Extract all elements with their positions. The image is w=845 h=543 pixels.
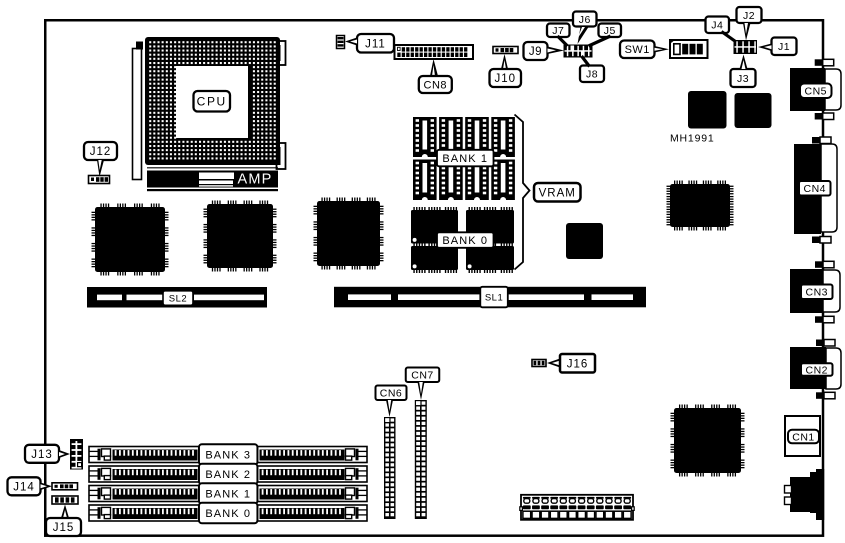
svg-text:CN2: CN2 xyxy=(805,364,828,376)
svg-text:CN1: CN1 xyxy=(792,431,815,443)
svg-text:J11: J11 xyxy=(365,38,386,50)
svg-text:SL1: SL1 xyxy=(485,292,503,303)
svg-text:BANK 0: BANK 0 xyxy=(205,508,251,520)
svg-text:CN8: CN8 xyxy=(424,79,448,91)
svg-text:CN4: CN4 xyxy=(803,183,826,195)
svg-text:J2: J2 xyxy=(743,10,755,22)
svg-text:CN3: CN3 xyxy=(805,287,828,299)
svg-text:J13: J13 xyxy=(31,449,53,461)
svg-text:CN5: CN5 xyxy=(804,86,827,98)
svg-text:J10: J10 xyxy=(494,73,516,85)
svg-text:BANK 2: BANK 2 xyxy=(205,469,251,481)
svg-text:MH1991: MH1991 xyxy=(670,133,715,145)
svg-text:J8: J8 xyxy=(586,69,598,81)
svg-text:VRAM: VRAM xyxy=(539,187,576,199)
svg-text:J6: J6 xyxy=(579,14,591,26)
svg-text:BANK 1: BANK 1 xyxy=(205,488,251,500)
svg-text:BANK 1: BANK 1 xyxy=(442,153,488,165)
svg-text:J12: J12 xyxy=(90,146,112,158)
svg-text:CN7: CN7 xyxy=(411,370,434,382)
svg-text:J14: J14 xyxy=(13,481,35,493)
svg-text:J16: J16 xyxy=(567,358,589,370)
svg-text:AMP: AMP xyxy=(237,172,272,188)
svg-text:CPU: CPU xyxy=(197,95,227,109)
svg-text:SW1: SW1 xyxy=(625,44,650,56)
svg-text:J7: J7 xyxy=(552,25,564,37)
svg-text:SL2: SL2 xyxy=(169,293,187,304)
svg-text:J3: J3 xyxy=(737,73,749,85)
svg-text:J15: J15 xyxy=(53,522,75,534)
svg-text:J9: J9 xyxy=(529,46,542,58)
svg-text:J1: J1 xyxy=(778,41,790,53)
svg-text:CN6: CN6 xyxy=(380,388,403,400)
svg-text:J4: J4 xyxy=(711,20,723,32)
svg-text:BANK 0: BANK 0 xyxy=(442,235,488,247)
svg-text:BANK 3: BANK 3 xyxy=(205,449,251,461)
